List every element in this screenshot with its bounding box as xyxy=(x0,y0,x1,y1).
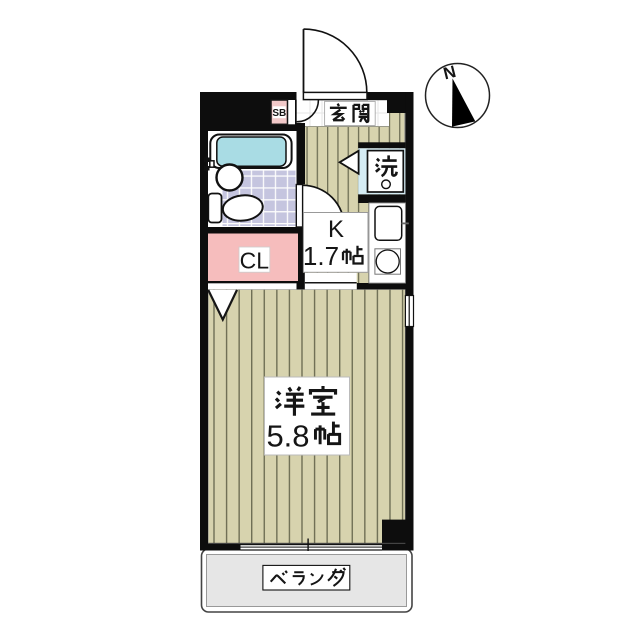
svg-text:CL: CL xyxy=(240,248,270,274)
svg-text:5.8: 5.8 xyxy=(266,419,309,454)
svg-text:SB: SB xyxy=(272,108,286,119)
svg-text:K: K xyxy=(328,216,344,243)
svg-text:1.7: 1.7 xyxy=(303,241,339,271)
